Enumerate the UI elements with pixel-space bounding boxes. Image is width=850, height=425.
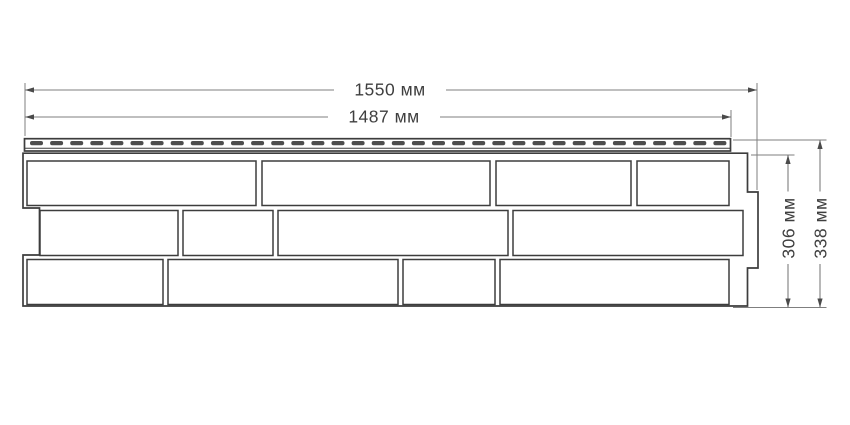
nail-slot [472,141,485,145]
panel-dimension-drawing: 1550 мм 1487 мм 306 мм 338 мм [0,0,850,425]
drawing-svg: 1550 мм 1487 мм 306 мм 338 мм [0,0,850,425]
brick [513,211,743,256]
arrow-right-icon [748,87,757,92]
dimension-overall-length: 1550 мм [25,80,757,100]
nail-slot [553,141,566,145]
nail-slot [131,141,144,145]
brick [500,260,729,305]
brick [27,260,163,305]
nail-slot [512,141,525,145]
brick [168,260,398,305]
arrow-down-icon [785,299,790,308]
brick [496,161,631,206]
nail-slot [593,141,606,145]
nail-slot [713,141,726,145]
nail-slot [352,141,365,145]
nail-slot [673,141,686,145]
dimension-label-overall-length: 1550 мм [354,80,425,100]
nail-slot [372,141,385,145]
nail-slot [693,141,706,145]
brick [403,260,495,305]
nail-slot [70,141,83,145]
nail-slot [50,141,63,145]
brick [27,161,256,206]
arrow-down-icon [817,299,822,308]
nail-slot [492,141,505,145]
dimension-working-length: 1487 мм [25,107,731,127]
nail-slot [171,141,184,145]
nail-slot [30,141,43,145]
brick [278,211,508,256]
arrow-left-icon [25,114,34,119]
nail-slot [432,141,445,145]
dimension-label-working-length: 1487 мм [348,107,419,127]
brick [183,211,273,256]
nail-slot [573,141,586,145]
nail-slot [90,141,103,145]
nail-slot [311,141,324,145]
nail-slot [653,141,666,145]
arrow-right-icon [722,114,731,119]
nail-slot [231,141,244,145]
brick [40,211,178,256]
nail-slot [533,141,546,145]
arrow-left-icon [25,87,34,92]
nail-slot [251,141,264,145]
nail-slot [271,141,284,145]
dimension-body-height: 306 мм [779,155,799,308]
dimension-label-overall-height: 338 мм [811,197,831,258]
perforation-slots [30,141,726,145]
nail-slot [392,141,405,145]
brick-row-2 [40,211,743,256]
nailing-strip [25,139,731,151]
nail-slot [110,141,123,145]
brick [262,161,490,206]
nail-slot [291,141,304,145]
dimension-overall-height: 338 мм [811,140,831,308]
dimension-label-body-height: 306 мм [779,197,799,258]
nail-slot [613,141,626,145]
nail-slot [191,141,204,145]
brick-row-3 [27,260,729,305]
brick-row-1 [27,161,729,206]
nail-slot [412,141,425,145]
nail-slot [633,141,646,145]
nail-slot [211,141,224,145]
nail-slot [151,141,164,145]
arrow-up-icon [817,140,822,149]
arrow-up-icon [785,155,790,164]
nail-slot [452,141,465,145]
brick [637,161,729,206]
nail-slot [332,141,345,145]
